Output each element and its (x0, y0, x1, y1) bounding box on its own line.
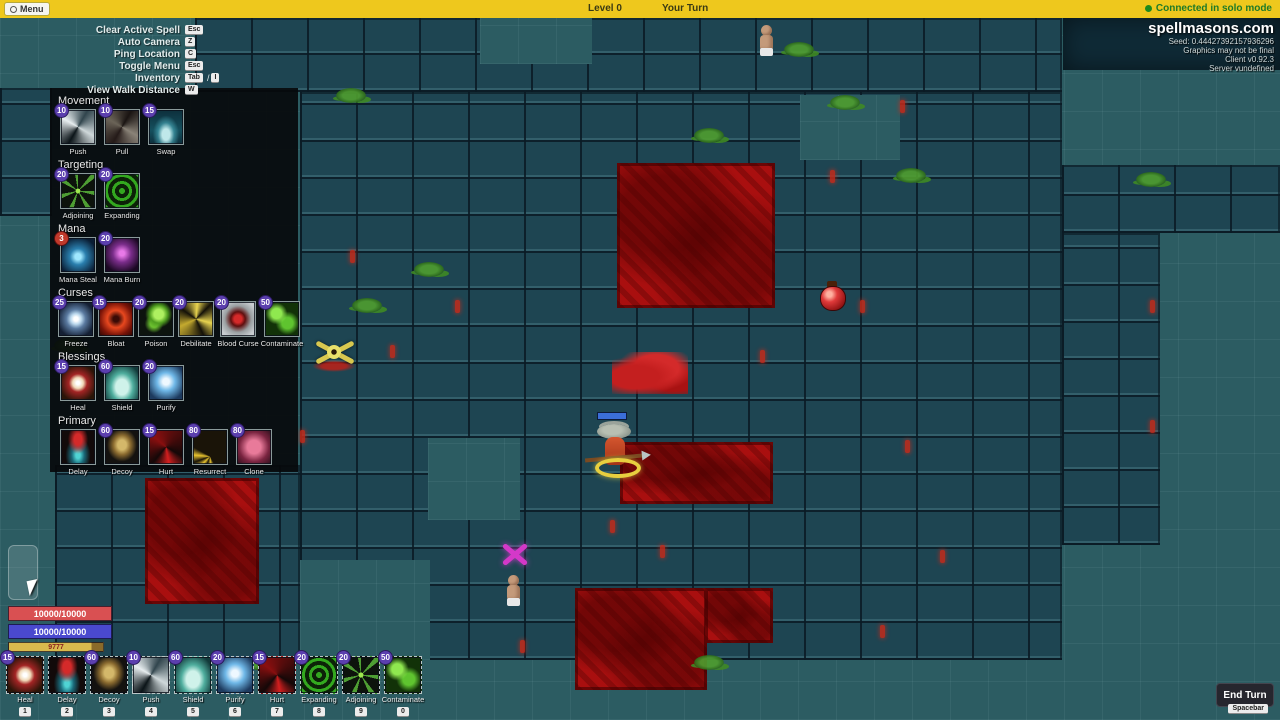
pl-hpbar (597, 412, 627, 420)
client-version: Client v0.92.3 (1148, 55, 1274, 64)
spell-iconwrap: 15 (148, 429, 184, 465)
spell-iconwrap: 15 (6, 656, 44, 694)
mana-cost-badge: 50 (378, 650, 393, 665)
moss-patch (694, 128, 724, 143)
spell-card-poison[interactable]: 20Poison (138, 301, 174, 348)
mana-cost-badge: 15 (142, 103, 157, 118)
mana-cost-badge: 20 (294, 650, 309, 665)
mana-cost-badge: 80 (186, 423, 201, 438)
end-turn-hotkey-badge: Spacebar (1228, 704, 1268, 714)
keybind-key-badge: Esc (185, 25, 203, 35)
mana-cost-badge: 10 (54, 103, 69, 118)
hotkey-badge: 8 (313, 707, 325, 717)
lava-crack (860, 300, 865, 313)
lava-crack (900, 100, 905, 113)
lava-crack (390, 345, 395, 358)
spell-card-shield[interactable]: 60Shield (102, 365, 142, 412)
delay-spell-icon (48, 656, 86, 694)
graphics-note: Graphics may not be final (1148, 46, 1274, 55)
spell-name-label: Resurrect (194, 467, 227, 476)
spell-name-label: Expanding (301, 695, 336, 704)
lava-crack (830, 170, 835, 183)
spell-name-label: Adjoining (63, 211, 94, 220)
pl-ring (595, 458, 641, 478)
spell-iconwrap: 20 (104, 237, 140, 273)
spell-card-freeze[interactable]: 25Freeze (58, 301, 94, 348)
spell-card-decoy[interactable]: 60Decoy3 (88, 656, 130, 717)
spell-iconwrap: 10 (132, 656, 170, 694)
mana-cost-badge: 20 (336, 650, 351, 665)
mana-cost-badge: 10 (126, 650, 141, 665)
villager-north[interactable] (758, 25, 774, 59)
lava-crack (1150, 300, 1155, 313)
spellbook-section-title: Mana (58, 223, 290, 235)
spell-name-label: Purify (156, 403, 175, 412)
mana-bar: 10000/10000 (8, 624, 112, 639)
blood-pool (575, 588, 707, 690)
spell-card-push[interactable]: 10Push4 (130, 656, 172, 717)
hotkey-badge: 7 (271, 707, 283, 717)
lava-crack (455, 300, 460, 313)
keybind-label: Toggle Menu (10, 61, 185, 72)
keybind-key-badge: W (185, 85, 198, 95)
spell-iconwrap: 3 (60, 237, 96, 273)
spell-card-heal[interactable]: 15Heal1 (4, 656, 46, 717)
blood-pool (705, 588, 773, 643)
moss-patch (784, 42, 814, 57)
spell-card-pull[interactable]: 10Pull (102, 109, 142, 156)
keybind-row: View Walk DistanceW (10, 84, 221, 96)
keybind-label: Clear Active Spell (10, 25, 185, 36)
spell-iconwrap (48, 656, 86, 694)
mana-cost-badge: 20 (210, 650, 225, 665)
spell-name-label: Expanding (104, 211, 139, 220)
spell-iconwrap: 50 (264, 301, 300, 337)
stone-tile-region (0, 88, 52, 216)
hotkey-badge: 0 (397, 707, 409, 717)
mana-cost-badge: 20 (142, 359, 157, 374)
spell-iconwrap: 20 (178, 301, 214, 337)
spell-iconwrap: 60 (104, 429, 140, 465)
mana-cost-badge: 20 (98, 231, 113, 246)
spell-iconwrap: 20 (216, 656, 254, 694)
level-label: Level 0 (588, 3, 622, 14)
spell-iconwrap: 20 (60, 173, 96, 209)
spell-card-debilitate[interactable]: 20Debilitate (178, 301, 214, 348)
spell-iconwrap: 15 (148, 109, 184, 145)
spellbook-section-title: Blessings (58, 351, 290, 363)
spell-name-label: Freeze (64, 339, 87, 348)
spellbook-section-title: Primary (58, 415, 290, 427)
mana-cost-badge: 10 (98, 103, 113, 118)
spell-card-delay[interactable]: Delay (58, 429, 98, 476)
hotkey-badge: 1 (19, 707, 31, 717)
mana-cost-badge: 25 (52, 295, 67, 310)
spell-iconwrap: 80 (236, 429, 272, 465)
spell-card-swap[interactable]: 15Swap (146, 109, 186, 156)
spell-name-label: Decoy (111, 467, 132, 476)
spell-name-label: Shield (112, 403, 133, 412)
blood-pool (617, 163, 775, 308)
keybind-key-badge: Tab (185, 73, 203, 83)
villager-south[interactable] (505, 575, 521, 609)
spell-name-label: Decoy (98, 695, 119, 704)
status-dot-icon (1145, 5, 1152, 12)
mana-cost-badge: 50 (258, 295, 273, 310)
spell-name-label: Delay (68, 467, 87, 476)
moss-patch (414, 262, 444, 277)
spell-iconwrap: 60 (104, 365, 140, 401)
connection-status-label: Connected in solo mode (1156, 3, 1272, 14)
spell-name-label: Debilitate (180, 339, 211, 348)
spell-name-label: Contaminate (382, 695, 425, 704)
mana-cost-badge: 20 (214, 295, 229, 310)
spell-name-label: Purify (225, 695, 244, 704)
vg-shorts (760, 48, 773, 56)
spell-card-resurrect[interactable]: 80Resurrect (190, 429, 230, 476)
spell-name-label: Blood Curse (217, 339, 258, 348)
mana-cost-badge: 60 (84, 650, 99, 665)
spell-iconwrap: 60 (174, 656, 212, 694)
spellbook-section-row: 10Push10Pull15Swap (58, 109, 290, 156)
lava-crack (300, 430, 305, 443)
keybind-label: Inventory (10, 73, 185, 84)
mana-cost-badge: 80 (230, 423, 245, 438)
spell-iconwrap: 15 (60, 365, 96, 401)
moss-patch (830, 95, 860, 110)
spellbook-panel: Movement10Push10Pull15SwapTargeting20Adj… (50, 88, 298, 472)
keybind-key-badge: I (211, 73, 219, 83)
spell-card-mana-steal[interactable]: 3Mana Steal (58, 237, 98, 284)
floor-gap (480, 18, 592, 64)
spell-card-contaminate[interactable]: 50Contaminate (262, 301, 302, 348)
spell-iconwrap: 15 (258, 656, 296, 694)
hotkey-badge: 5 (187, 707, 199, 717)
keybind-key-badge: Esc (185, 61, 203, 71)
keybind-row: Auto CameraZ (10, 36, 221, 48)
moss-patch (352, 298, 382, 313)
mana-cost-badge: 15 (142, 423, 157, 438)
lava-crack (880, 625, 885, 638)
delay-spell-icon (60, 429, 96, 465)
mana-cost-badge: 60 (98, 423, 113, 438)
mana-cost-badge: 60 (168, 650, 183, 665)
spell-card-expanding[interactable]: 20Expanding8 (298, 656, 340, 717)
stone-tile-region (1062, 165, 1280, 233)
yellow-creature[interactable] (308, 336, 360, 372)
spell-card-clone[interactable]: 80Clone (234, 429, 274, 476)
spell-card-hurt[interactable]: 15Hurt (146, 429, 186, 476)
spell-name-label: Adjoining (346, 695, 377, 704)
hotkey-badge: 6 (229, 707, 241, 717)
spellbook-section-title: Targeting (58, 159, 290, 171)
spell-name-label: Hurt (159, 467, 173, 476)
spell-card-expanding[interactable]: 20Expanding (102, 173, 142, 220)
spell-card-shield[interactable]: 60Shield5 (172, 656, 214, 717)
spell-iconwrap: 20 (148, 365, 184, 401)
spell-name-label: Mana Steal (59, 275, 97, 284)
corpse-splatter[interactable] (612, 352, 688, 394)
purple-marker[interactable] (498, 538, 532, 572)
spell-iconwrap: 20 (220, 301, 256, 337)
spell-name-label: Push (69, 147, 86, 156)
spell-name-label: Poison (145, 339, 168, 348)
spell-iconwrap: 20 (342, 656, 380, 694)
keybind-row: Ping LocationC (10, 48, 221, 60)
site-title: spellmasons.com (1148, 20, 1274, 37)
stone-tile-region (195, 18, 1062, 92)
spell-name-label: Contaminate (261, 339, 304, 348)
spell-card-hurt[interactable]: 15Hurt7 (256, 656, 298, 717)
spell-toolbar: 15Heal1Delay260Decoy310Push460Shield520P… (4, 656, 424, 717)
lava-crack (520, 640, 525, 653)
menu-button-label: Menu (20, 4, 44, 14)
player-stat-bars: 10000/10000 10000/10000 9777 (8, 606, 112, 655)
floor-gap (300, 560, 430, 660)
keybind-key-badge: C (185, 49, 196, 59)
spell-iconwrap: 15 (98, 301, 134, 337)
floor-gap (428, 438, 520, 520)
hotkey-badge: 2 (61, 707, 73, 717)
hotkey-badge: 3 (103, 707, 115, 717)
mana-cost-badge: 15 (252, 650, 267, 665)
keybind-list: Clear Active SpellEscAuto CameraZPing Lo… (10, 24, 221, 96)
keybind-row: InventoryTab/I (10, 72, 221, 84)
hotkey-badge: 9 (355, 707, 367, 717)
spell-name-label: Push (142, 695, 159, 704)
spell-name-label: Mana Burn (104, 275, 141, 284)
turn-label: Your Turn (662, 3, 708, 14)
mana-cost-badge: 20 (54, 167, 69, 182)
health-bar: 10000/10000 (8, 606, 112, 621)
menu-button[interactable]: Menu (4, 2, 50, 16)
keybind-label: Auto Camera (10, 37, 185, 48)
mana-cost-badge: 20 (98, 167, 113, 182)
spellbook-section-row: Delay60Decoy15Hurt80Resurrect80Clone (58, 429, 290, 476)
blood-pool (145, 478, 259, 604)
spellbook-section-row: 3Mana Steal20Mana Burn (58, 237, 290, 284)
moss-patch (896, 168, 926, 183)
lava-crack (1150, 420, 1155, 433)
spellbook-section-title: Movement (58, 95, 290, 107)
vg-shorts (507, 598, 520, 606)
spell-iconwrap: 25 (58, 301, 94, 337)
spell-iconwrap: 10 (104, 109, 140, 145)
spell-iconwrap: 10 (60, 109, 96, 145)
keybind-separator: / (207, 73, 210, 83)
spell-card-mana-burn[interactable]: 20Mana Burn (102, 237, 142, 284)
spell-card-delay[interactable]: Delay2 (46, 656, 88, 717)
spell-iconwrap: 20 (138, 301, 174, 337)
lava-crack (940, 550, 945, 563)
lava-crack (610, 520, 615, 533)
lava-crack (660, 545, 665, 558)
gear-icon (10, 6, 17, 13)
spell-iconwrap: 60 (90, 656, 128, 694)
mana-cost-badge: 20 (132, 295, 147, 310)
spell-name-label: Hurt (270, 695, 284, 704)
mana-cost-badge: 3 (54, 231, 69, 246)
spell-name-label: Heal (17, 695, 32, 704)
spellbook-section-row: 25Freeze15Bloat20Poison20Debilitate20Blo… (58, 301, 290, 348)
spell-iconwrap: 50 (384, 656, 422, 694)
red-potion[interactable] (819, 281, 845, 309)
moss-patch (694, 655, 724, 670)
spell-card-bloat[interactable]: 15Bloat (98, 301, 134, 348)
game-stage: Menu Level 0 Your Turn Connected in solo… (0, 0, 1280, 720)
lava-crack (350, 250, 355, 263)
spell-card-decoy[interactable]: 60Decoy (102, 429, 142, 476)
spellbook-section-row: 15Heal60Shield20Purify (58, 365, 290, 412)
lava-crack (905, 440, 910, 453)
spell-card-purify[interactable]: 20Purify6 (214, 656, 256, 717)
spell-iconwrap: 20 (104, 173, 140, 209)
keybind-row: Toggle MenuEsc (10, 60, 221, 72)
build-info-panel: spellmasons.com Seed: 0.4442739215793629… (1148, 20, 1274, 73)
spell-name-label: Heal (70, 403, 85, 412)
mana-cost-badge: 60 (98, 359, 113, 374)
mana-cost-badge: 20 (172, 295, 187, 310)
spell-card-adjoining[interactable]: 20Adjoining (58, 173, 98, 220)
stone-tile-region (1062, 233, 1160, 545)
spell-card-blood-curse[interactable]: 20Blood Curse (218, 301, 258, 348)
moss-patch (1136, 172, 1166, 187)
keybind-label: Ping Location (10, 49, 185, 60)
spell-iconwrap: 80 (192, 429, 228, 465)
spell-name-label: Delay (57, 695, 76, 704)
server-version: Server vundefined (1148, 64, 1274, 73)
spell-card-push[interactable]: 10Push (58, 109, 98, 156)
spell-name-label: Clone (244, 467, 264, 476)
spell-card-adjoining[interactable]: 20Adjoining9 (340, 656, 382, 717)
spell-card-contaminate[interactable]: 50Contaminate0 (382, 656, 424, 717)
spell-iconwrap: 20 (300, 656, 338, 694)
hotkey-badge: 4 (145, 707, 157, 717)
mana-cost-badge: 15 (92, 295, 107, 310)
spell-name-label: Pull (116, 147, 129, 156)
moss-patch (336, 88, 366, 103)
spell-card-heal[interactable]: 15Heal (58, 365, 98, 412)
spell-card-purify[interactable]: 20Purify (146, 365, 186, 412)
keybind-label: View Walk Distance (10, 85, 185, 96)
mana-cost-badge: 15 (54, 359, 69, 374)
lava-crack (760, 350, 765, 363)
spellbook-section-row: 20Adjoining20Expanding (58, 173, 290, 220)
player-mage[interactable] (583, 412, 647, 482)
spell-iconwrap (60, 429, 96, 465)
seed-label: Seed: 0.44427392157936296 (1148, 37, 1274, 46)
spell-name-label: Swap (157, 147, 176, 156)
spell-name-label: Shield (183, 695, 204, 704)
mana-cost-badge: 15 (0, 650, 15, 665)
connection-status: Connected in solo mode (1145, 3, 1272, 14)
keybind-row: Clear Active SpellEsc (10, 24, 221, 36)
top-bar: Menu Level 0 Your Turn Connected in solo… (0, 0, 1280, 18)
yc-eye (327, 345, 341, 359)
spell-name-label: Bloat (107, 339, 124, 348)
keybind-key-badge: Z (185, 37, 195, 47)
